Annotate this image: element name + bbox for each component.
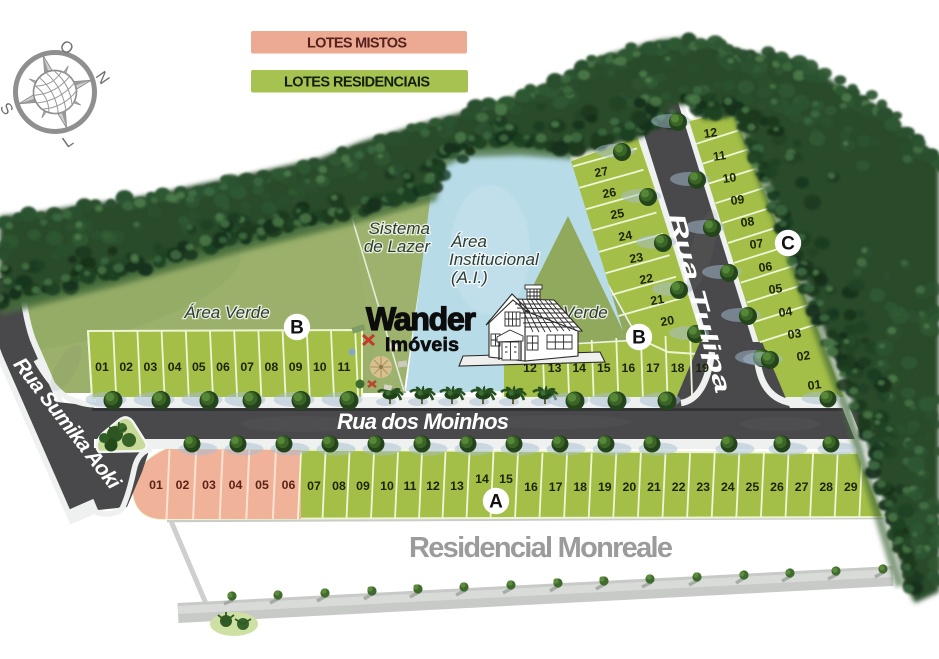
svg-text:02: 02 — [176, 478, 190, 492]
svg-text:03: 03 — [144, 360, 158, 374]
svg-text:Imóveis: Imóveis — [385, 334, 459, 356]
svg-text:21: 21 — [647, 480, 661, 494]
svg-text:Residencial Monreale: Residencial Monreale — [409, 532, 673, 564]
svg-text:04: 04 — [778, 304, 794, 320]
svg-text:23: 23 — [696, 480, 710, 494]
svg-text:(A.I.): (A.I.) — [451, 268, 488, 287]
svg-text:02: 02 — [796, 348, 812, 364]
svg-text:05: 05 — [192, 360, 206, 374]
svg-text:01: 01 — [807, 377, 823, 393]
svg-text:20: 20 — [623, 480, 637, 494]
svg-text:09: 09 — [356, 479, 370, 493]
svg-text:10: 10 — [313, 360, 327, 374]
svg-text:08: 08 — [740, 214, 756, 230]
svg-text:29: 29 — [844, 480, 858, 494]
svg-text:A: A — [489, 492, 503, 513]
svg-text:LOTES RESIDENCIAIS: LOTES RESIDENCIAIS — [284, 75, 430, 91]
svg-text:15: 15 — [597, 361, 611, 375]
svg-text:10: 10 — [722, 170, 738, 186]
svg-text:04: 04 — [168, 360, 182, 374]
svg-text:LOTES MISTOS: LOTES MISTOS — [307, 36, 407, 52]
svg-text:05: 05 — [768, 281, 784, 297]
svg-text:16: 16 — [622, 361, 636, 375]
svg-text:05: 05 — [255, 478, 269, 492]
svg-text:17: 17 — [646, 361, 660, 375]
svg-text:22: 22 — [638, 271, 654, 287]
svg-text:03: 03 — [787, 326, 803, 342]
svg-text:06: 06 — [758, 259, 774, 275]
svg-text:06: 06 — [216, 360, 230, 374]
svg-text:15: 15 — [499, 472, 513, 486]
svg-text:16: 16 — [524, 480, 538, 494]
svg-text:24: 24 — [617, 228, 633, 244]
svg-text:28: 28 — [819, 480, 833, 494]
svg-text:22: 22 — [672, 480, 686, 494]
svg-text:03: 03 — [202, 478, 216, 492]
svg-text:01: 01 — [95, 360, 109, 374]
svg-text:19: 19 — [598, 480, 612, 494]
svg-text:14: 14 — [475, 472, 489, 486]
svg-text:18: 18 — [671, 361, 685, 375]
svg-text:Área: Área — [450, 232, 487, 251]
svg-text:Wander: Wander — [366, 301, 476, 337]
svg-text:12: 12 — [426, 479, 440, 493]
svg-text:B: B — [632, 328, 646, 349]
svg-text:27: 27 — [795, 480, 809, 494]
svg-text:26: 26 — [770, 480, 784, 494]
svg-text:25: 25 — [746, 480, 760, 494]
svg-text:de Lazer: de Lazer — [364, 237, 431, 256]
svg-text:01: 01 — [149, 478, 163, 492]
svg-text:13: 13 — [450, 479, 464, 493]
svg-text:Rua dos Moinhos: Rua dos Moinhos — [337, 409, 509, 434]
svg-text:Área Verde: Área Verde — [183, 303, 269, 322]
svg-text:10: 10 — [380, 479, 394, 493]
svg-text:07: 07 — [240, 360, 254, 374]
svg-text:23: 23 — [628, 250, 644, 266]
svg-text:11: 11 — [338, 360, 351, 374]
svg-text:Institucional: Institucional — [449, 250, 540, 269]
svg-text:08: 08 — [332, 479, 346, 493]
svg-text:26: 26 — [601, 185, 617, 201]
svg-text:11: 11 — [404, 479, 417, 493]
svg-text:08: 08 — [265, 360, 279, 374]
svg-text:18: 18 — [573, 480, 587, 494]
svg-text:09: 09 — [289, 360, 303, 374]
svg-text:12: 12 — [703, 125, 719, 141]
svg-text:07: 07 — [749, 236, 765, 252]
svg-text:25: 25 — [609, 206, 625, 222]
svg-text:09: 09 — [730, 192, 746, 208]
svg-text:17: 17 — [549, 480, 563, 494]
svg-text:24: 24 — [721, 480, 735, 494]
svg-text:07: 07 — [307, 479, 321, 493]
svg-text:06: 06 — [282, 478, 296, 492]
svg-text:27: 27 — [593, 164, 609, 180]
svg-text:Sistema: Sistema — [369, 219, 430, 238]
svg-text:11: 11 — [712, 148, 727, 164]
svg-text:02: 02 — [119, 360, 133, 374]
svg-text:20: 20 — [659, 313, 675, 329]
svg-text:B: B — [290, 318, 304, 339]
svg-text:04: 04 — [229, 478, 243, 492]
svg-text:C: C — [781, 234, 795, 255]
